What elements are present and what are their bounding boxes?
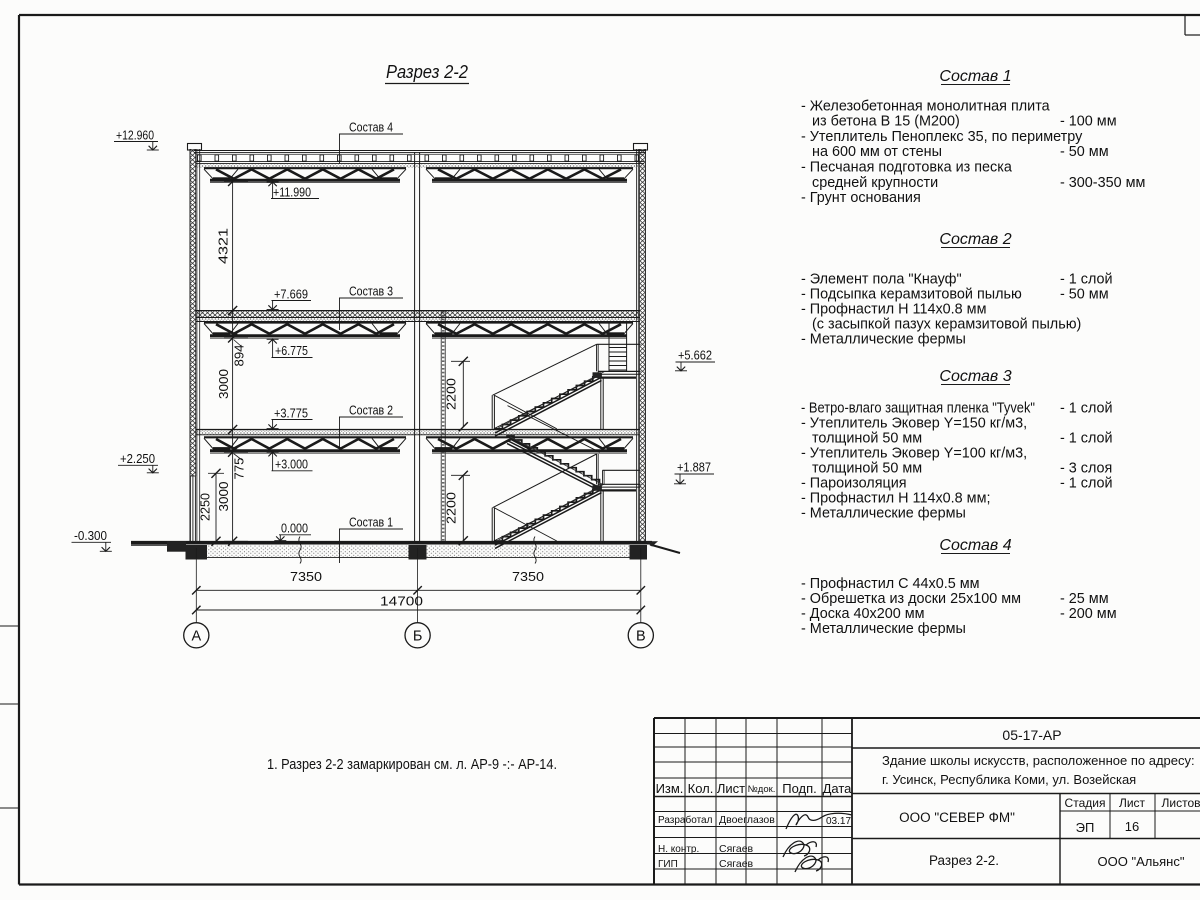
- svg-text:- 100 мм: - 100 мм: [1060, 114, 1117, 130]
- svg-text:- 300-350 мм: - 300-350 мм: [1060, 175, 1145, 191]
- svg-text:- Металлические фермы: - Металлические фермы: [801, 621, 966, 637]
- svg-text:- Элемент пола "Кнауф": - Элемент пола "Кнауф": [801, 272, 962, 288]
- svg-text:- Доска 40х200 мм: - Доска 40х200 мм: [801, 606, 925, 622]
- svg-text:Сягаев: Сягаев: [719, 843, 754, 855]
- svg-text:+12.960: +12.960: [116, 128, 154, 143]
- svg-text:Разрез 2-2.: Разрез 2-2.: [929, 853, 999, 868]
- svg-text:894: 894: [232, 345, 247, 367]
- svg-text:- 1 слой: - 1 слой: [1060, 401, 1113, 417]
- svg-text:03.17: 03.17: [826, 816, 851, 827]
- svg-text:Двоеглазов: Двоеглазов: [719, 814, 775, 826]
- svg-text:+11.990: +11.990: [273, 185, 311, 200]
- svg-text:Листов: Листов: [1162, 796, 1200, 810]
- svg-text:- Обрешетка из доски 25х100 мм: - Обрешетка из доски 25х100 мм: [801, 591, 1021, 607]
- svg-text:4321: 4321: [216, 228, 231, 264]
- svg-text:+5.662: +5.662: [678, 348, 712, 363]
- svg-text:Состав 4: Состав 4: [939, 537, 1011, 554]
- svg-text:толщиной 50 мм: толщиной 50 мм: [812, 461, 922, 477]
- svg-text:(с засыпкой пазух керамзитовой: (с засыпкой пазух керамзитовой пылью): [812, 317, 1081, 333]
- svg-text:- 200 мм: - 200 мм: [1060, 606, 1117, 622]
- svg-text:7350: 7350: [512, 569, 544, 584]
- svg-text:7350: 7350: [290, 569, 322, 584]
- svg-text:775: 775: [232, 458, 247, 480]
- svg-text:2200: 2200: [444, 378, 459, 410]
- svg-text:ЭП: ЭП: [1076, 820, 1095, 835]
- svg-text:-0.300: -0.300: [74, 528, 107, 543]
- svg-text:- Утеплитель Пеноплекс 35, по: - Утеплитель Пеноплекс 35, по периметру: [801, 129, 1083, 145]
- svg-text:Дата: Дата: [823, 781, 853, 796]
- svg-text:ГИП: ГИП: [658, 859, 678, 870]
- svg-text:2200: 2200: [444, 492, 459, 524]
- svg-text:3000: 3000: [216, 482, 231, 512]
- svg-text:- Подсыпка керамзитовой пылью: - Подсыпка керамзитовой пылью: [801, 287, 1022, 303]
- svg-text:Здание школы искусств, располо: Здание школы искусств, расположенное по …: [882, 753, 1195, 768]
- svg-text:- Утеплитель Эковер Y=100 кг/м: - Утеплитель Эковер Y=100 кг/м3,: [801, 446, 1027, 462]
- svg-text:- Песчаная подготовка из песка: - Песчаная подготовка из песка: [801, 160, 1012, 176]
- svg-text:Лист: Лист: [1119, 796, 1146, 810]
- svg-text:Состав 3: Состав 3: [939, 368, 1011, 385]
- svg-text:- 1 слой: - 1 слой: [1060, 431, 1113, 447]
- svg-text:- Пароизоляция: - Пароизоляция: [801, 476, 907, 492]
- svg-text:+7.669: +7.669: [274, 287, 308, 302]
- svg-text:1. Разрез 2-2 замаркирован см.: 1. Разрез 2-2 замаркирован см. л. АР-9 -…: [267, 757, 557, 773]
- svg-text:+1.887: +1.887: [677, 460, 711, 475]
- svg-text:толщиной 50 мм: толщиной 50 мм: [812, 431, 922, 447]
- svg-text:Стадия: Стадия: [1065, 796, 1106, 810]
- svg-text:Изм.: Изм.: [656, 781, 684, 796]
- svg-text:- 25 мм: - 25 мм: [1060, 591, 1109, 607]
- svg-text:Кол.: Кол.: [688, 781, 714, 796]
- svg-text:Б: Б: [413, 628, 423, 644]
- svg-text:ООО "Альянс": ООО "Альянс": [1098, 854, 1185, 869]
- svg-text:- 50 мм: - 50 мм: [1060, 287, 1109, 303]
- svg-text:- Профнастил Н 114х0.8 мм;: - Профнастил Н 114х0.8 мм;: [801, 491, 990, 507]
- svg-text:+3.000: +3.000: [275, 457, 308, 472]
- svg-text:Состав 3: Состав 3: [349, 284, 393, 299]
- svg-text:Состав 4: Состав 4: [349, 120, 393, 135]
- svg-text:16: 16: [1125, 819, 1139, 834]
- svg-text:05-17-АР: 05-17-АР: [1002, 727, 1061, 743]
- svg-text:2250: 2250: [198, 493, 213, 521]
- svg-text:- Грунт основания: - Грунт основания: [801, 190, 921, 206]
- svg-text:- Металлические фермы: - Металлические фермы: [801, 332, 966, 348]
- svg-text:- Профнастил Н 114х0.8 мм: - Профнастил Н 114х0.8 мм: [801, 302, 986, 318]
- svg-text:ООО "СЕВЕР ФМ": ООО "СЕВЕР ФМ": [899, 810, 1015, 825]
- svg-text:Состав 2: Состав 2: [349, 403, 393, 418]
- svg-text:Сягаев: Сягаев: [719, 858, 754, 870]
- svg-text:0.000: 0.000: [281, 521, 308, 536]
- svg-text:- 50 мм: - 50 мм: [1060, 144, 1109, 160]
- svg-text:3000: 3000: [216, 369, 231, 399]
- svg-text:Состав 1: Состав 1: [349, 515, 393, 530]
- svg-text:из бетона В 15 (М200): из бетона В 15 (М200): [812, 114, 960, 130]
- svg-text:А: А: [191, 628, 201, 644]
- svg-text:В: В: [636, 628, 646, 644]
- svg-text:Разрез 2-2: Разрез 2-2: [386, 62, 468, 82]
- svg-text:- Железобетонная монолитная п: - Железобетонная монолитная плита: [801, 99, 1050, 115]
- svg-text:14700: 14700: [380, 594, 423, 609]
- svg-text:+3.775: +3.775: [274, 406, 308, 421]
- svg-text:Состав 1: Состав 1: [939, 68, 1011, 85]
- svg-text:средней крупности: средней крупности: [812, 175, 938, 191]
- svg-text:Состав 2: Состав 2: [939, 231, 1011, 248]
- svg-text:№док.: №док.: [748, 784, 776, 795]
- svg-text:- 1 слой: - 1 слой: [1060, 476, 1113, 492]
- svg-text:- Профнастил С 44х0.5 мм: - Профнастил С 44х0.5 мм: [801, 576, 980, 592]
- svg-text:- 3 слоя: - 3 слоя: [1060, 461, 1112, 477]
- svg-text:г. Усинск, Республика Коми, ул: г. Усинск, Республика Коми, ул. Возейска…: [882, 772, 1136, 787]
- svg-text:- Металлические фермы: - Металлические фермы: [801, 506, 966, 522]
- svg-text:- Утеплитель Эковер Y=150 кг/м: - Утеплитель Эковер Y=150 кг/м3,: [801, 416, 1027, 432]
- svg-text:на 600 мм от стены: на 600 мм от стены: [812, 144, 942, 160]
- svg-text:Разработал: Разработал: [658, 814, 713, 826]
- svg-text:- 1 слой: - 1 слой: [1060, 272, 1113, 288]
- svg-text:+2.250: +2.250: [120, 451, 155, 466]
- svg-text:- Ветро-влаго защитная пленка: - Ветро-влаго защитная пленка "Tyvek": [801, 401, 1035, 417]
- svg-text:+6.775: +6.775: [275, 343, 308, 358]
- svg-text:Подп.: Подп.: [782, 781, 817, 796]
- svg-text:Лист: Лист: [717, 781, 745, 796]
- svg-text:Н. контр.: Н. контр.: [658, 844, 699, 855]
